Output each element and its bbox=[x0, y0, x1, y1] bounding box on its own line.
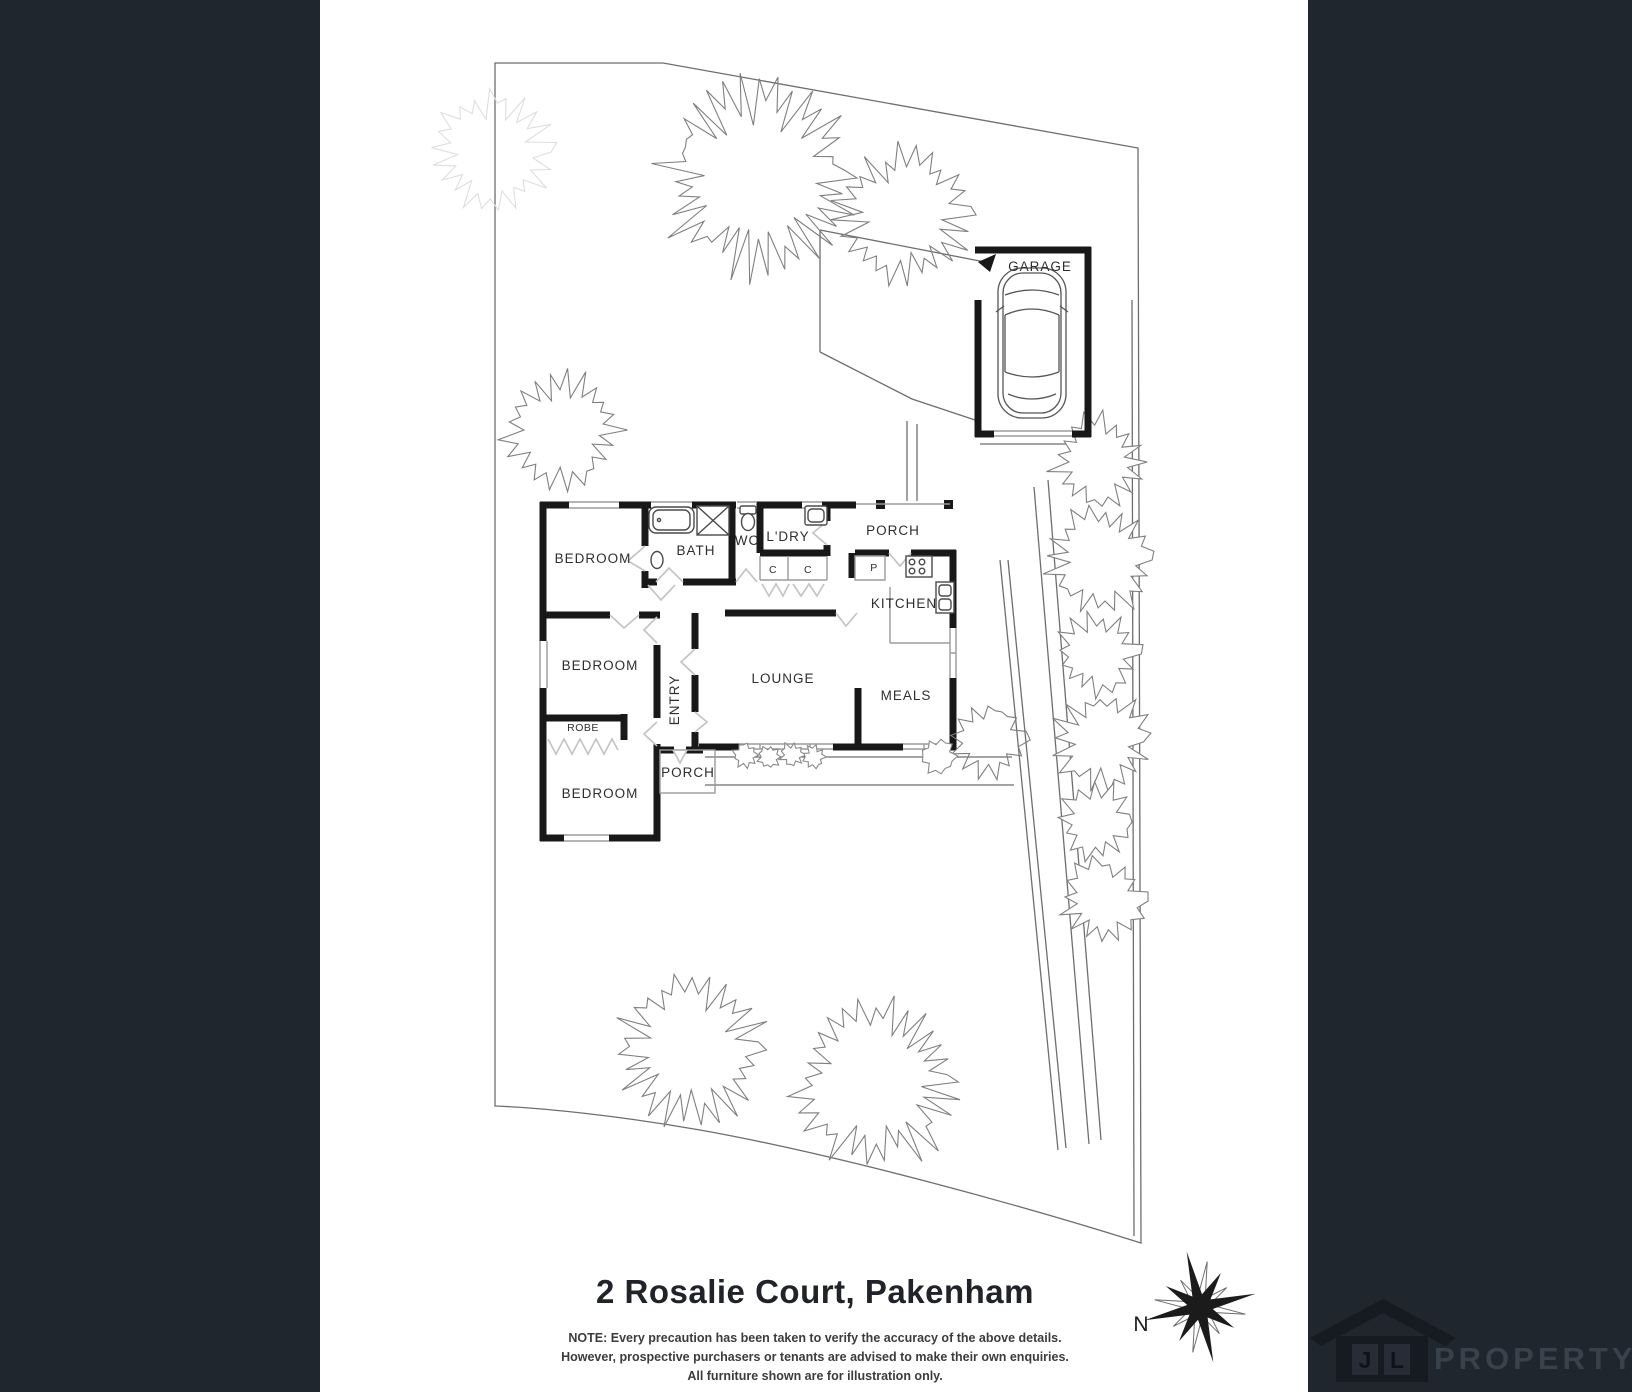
room-label-entry: ENTRY bbox=[667, 675, 682, 726]
room-label-porch-top: PORCH bbox=[866, 523, 920, 538]
pantry-label: P bbox=[870, 562, 878, 574]
room-label-bedroom-1: BEDROOM bbox=[555, 551, 632, 566]
logo-house-body bbox=[1336, 1336, 1428, 1382]
plan-title: 2 Rosalie Court, Pakenham bbox=[596, 1273, 1034, 1310]
laundry-tub-inner bbox=[808, 509, 824, 522]
room-label-meals: MEALS bbox=[881, 688, 932, 703]
room-label-bath: BATH bbox=[676, 543, 715, 558]
closet-label-1: C bbox=[769, 564, 777, 576]
sink-bowl bbox=[939, 585, 951, 596]
logo-letter-l: L bbox=[1390, 1347, 1404, 1373]
plan-paper bbox=[320, 0, 1308, 1392]
room-label-porch-bottom: PORCH bbox=[661, 765, 715, 780]
note-line-1: NOTE: Every precaution has been taken to… bbox=[568, 1331, 1061, 1345]
basin-icon bbox=[651, 552, 663, 569]
compass-north-label: N bbox=[1133, 1313, 1148, 1336]
room-label-robe: ROBE bbox=[567, 722, 599, 734]
stove-icon bbox=[906, 556, 932, 577]
room-label-laundry: L'DRY bbox=[766, 529, 809, 544]
note-line-2: However, prospective purchasers or tenan… bbox=[561, 1350, 1069, 1364]
sink-bowl bbox=[939, 599, 951, 610]
room-label-kitchen: KITCHEN bbox=[871, 596, 937, 611]
floorplan-page: BEDROOM BATH WC L'DRY PORCH KITCHEN BEDR… bbox=[0, 0, 1632, 1392]
note-line-3: All furniture shown are for illustration… bbox=[687, 1369, 942, 1383]
bathtub-drain bbox=[657, 518, 660, 521]
room-label-garage: GARAGE bbox=[1008, 259, 1072, 274]
logo-name: PROPERTY bbox=[1434, 1341, 1632, 1376]
room-label-bedroom-2: BEDROOM bbox=[562, 658, 639, 673]
site-plan-canvas: BEDROOM BATH WC L'DRY PORCH KITCHEN BEDR… bbox=[0, 0, 1632, 1392]
room-label-bedroom-3: BEDROOM bbox=[562, 786, 639, 801]
closet-label-2: C bbox=[804, 564, 812, 576]
room-label-lounge: LOUNGE bbox=[751, 671, 814, 686]
logo-letter-j: J bbox=[1359, 1347, 1372, 1373]
room-label-wc: WC bbox=[735, 533, 760, 548]
toilet-bowl-icon bbox=[742, 514, 755, 531]
car-icon bbox=[996, 268, 1068, 418]
